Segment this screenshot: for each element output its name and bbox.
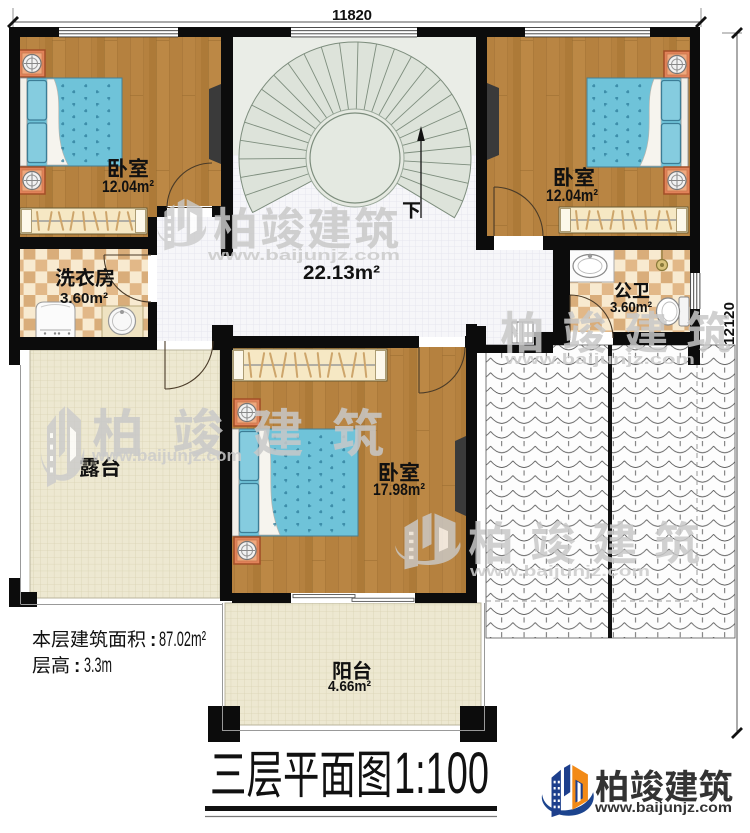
svg-text::: : [74, 656, 80, 677]
svg-text:87.02m²: 87.02m² [159, 628, 206, 651]
svg-text:11820: 11820 [332, 7, 372, 24]
svg-text:12.04m²: 12.04m² [546, 186, 598, 205]
svg-text:www.baijunjz.com: www.baijunjz.com [469, 563, 650, 580]
svg-text:www.baijunjz.com: www.baijunjz.com [504, 351, 695, 368]
svg-text:4.66m²: 4.66m² [328, 678, 371, 695]
svg-text:www.baijunjz.com: www.baijunjz.com [594, 799, 732, 815]
svg-text::: : [150, 630, 156, 651]
svg-text:17.98m²: 17.98m² [373, 480, 425, 499]
svg-text:1:100: 1:100 [394, 741, 489, 806]
svg-text:22.13m²: 22.13m² [303, 263, 380, 284]
svg-text:www.baijunjz.com: www.baijunjz.com [91, 446, 242, 465]
svg-text:3.3m: 3.3m [84, 654, 112, 677]
svg-text:3.60m²: 3.60m² [60, 290, 108, 307]
svg-text:12.04m²: 12.04m² [102, 177, 154, 196]
svg-text:www.baijunjz.com: www.baijunjz.com [207, 247, 400, 264]
